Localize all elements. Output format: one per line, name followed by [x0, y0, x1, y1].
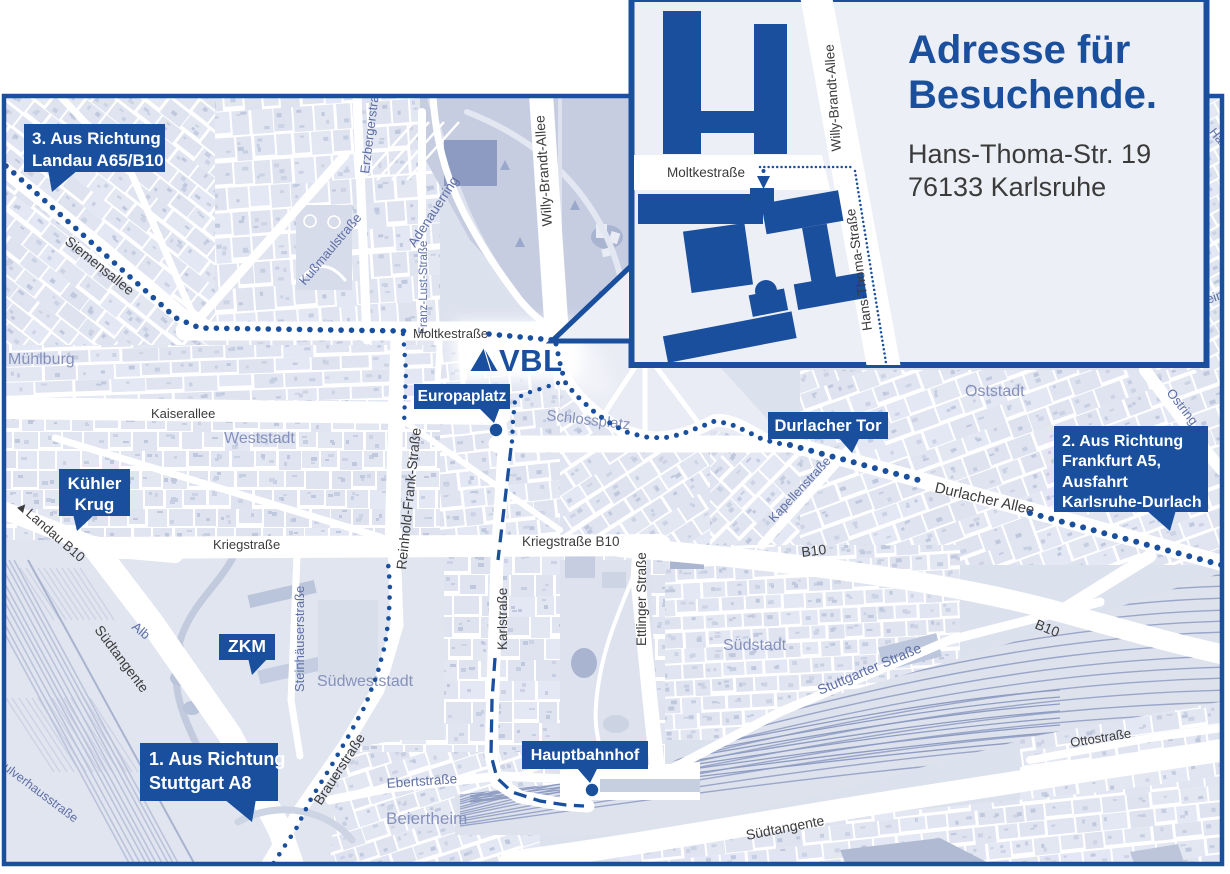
svg-text:Franz-Lust-Straße: Franz-Lust-Straße: [418, 241, 430, 334]
svg-text:Weststadt: Weststadt: [224, 430, 295, 447]
svg-text:Steinhäuserstraße: Steinhäuserstraße: [292, 586, 307, 692]
svg-text:ZKM: ZKM: [228, 636, 266, 656]
svg-text:Frankfurt A5,: Frankfurt A5,: [1062, 453, 1161, 470]
svg-text:1. Aus Richtung: 1. Aus Richtung: [149, 749, 285, 769]
svg-text:2. Aus Richtung: 2. Aus Richtung: [1062, 433, 1183, 450]
svg-text:Oststadt: Oststadt: [965, 383, 1025, 400]
svg-text:Besuchende.: Besuchende.: [908, 73, 1157, 117]
svg-text:Südstadt: Südstadt: [723, 637, 787, 654]
svg-text:Hans-Thoma-Str. 19: Hans-Thoma-Str. 19: [908, 139, 1151, 169]
svg-text:Karlstraße: Karlstraße: [495, 588, 510, 650]
svg-text:Stuttgart A8: Stuttgart A8: [149, 773, 251, 793]
svg-text:Ausfahrt: Ausfahrt: [1062, 474, 1128, 491]
svg-text:Moltkestraße: Moltkestraße: [667, 165, 745, 180]
svg-text:Karlsruhe-Durlach: Karlsruhe-Durlach: [1062, 494, 1202, 511]
svg-text:Durlacher Tor: Durlacher Tor: [775, 417, 883, 435]
svg-text:Beiertheim: Beiertheim: [386, 809, 467, 828]
svg-text:Kriegstraße: Kriegstraße: [213, 537, 280, 552]
svg-text:B10: B10: [800, 541, 827, 560]
svg-text:Ettlinger Straße: Ettlinger Straße: [634, 552, 649, 646]
svg-text:Kaiserallee: Kaiserallee: [151, 406, 215, 421]
svg-text:Moltkestraße: Moltkestraße: [413, 326, 488, 341]
svg-text:VBL: VBL: [499, 343, 563, 378]
svg-text:Europaplatz: Europaplatz: [418, 388, 507, 405]
svg-text:Krug: Krug: [75, 495, 115, 514]
svg-text:3. Aus Richtung: 3. Aus Richtung: [32, 129, 161, 148]
svg-text:Kühler: Kühler: [68, 474, 122, 493]
svg-text:Landau A65/B10: Landau A65/B10: [32, 151, 164, 170]
svg-text:Südweststadt: Südweststadt: [317, 673, 414, 690]
svg-text:76133 Karlsruhe: 76133 Karlsruhe: [908, 172, 1106, 202]
svg-text:Mühlburg: Mühlburg: [8, 351, 75, 368]
svg-text:Kriegstraße B10: Kriegstraße B10: [522, 534, 620, 549]
svg-text:Hauptbahnhof: Hauptbahnhof: [531, 747, 640, 764]
svg-text:Adresse für: Adresse für: [908, 28, 1130, 72]
